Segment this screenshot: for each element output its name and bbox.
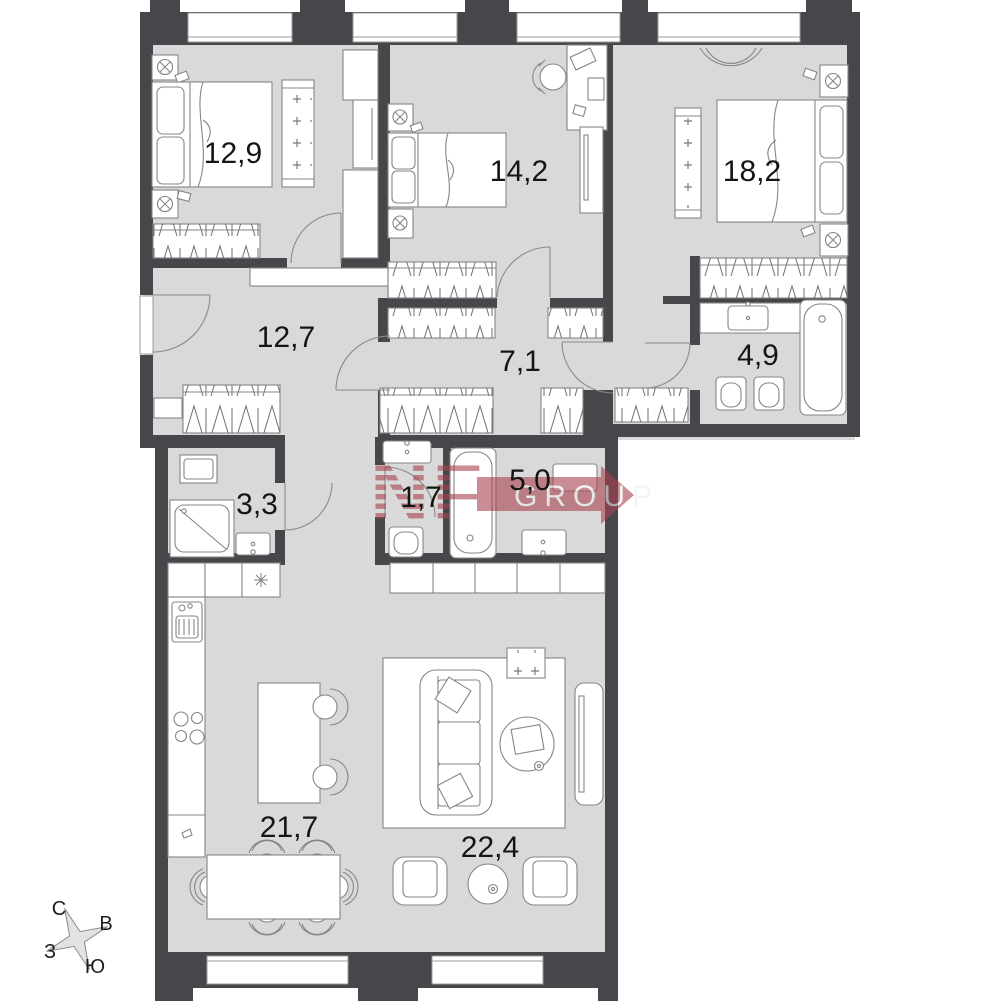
compass-rose: С В З Ю <box>44 898 113 978</box>
window-top-1 <box>188 13 292 42</box>
room-area-label-bedroom-2: 14,2 <box>490 155 548 188</box>
room-area-label-wc: 1,7 <box>400 481 442 514</box>
window-top-2 <box>353 13 457 42</box>
window-bottom-2 <box>432 956 543 984</box>
compass-label-west: З <box>44 941 56 963</box>
compass-label-east: В <box>99 913 112 935</box>
window-top-3 <box>517 13 620 42</box>
window-bottom-1 <box>207 956 348 984</box>
room-area-label-hallway: 12,7 <box>257 321 315 354</box>
room-area-label-corridor: 7,1 <box>499 345 541 378</box>
window-top-4 <box>658 13 800 42</box>
room-area-label-kitchen-dining: 21,7 <box>260 811 318 844</box>
floor-plan-page: NF GROUP 12,9 14,2 18,2 12,7 7,1 4,9 3,3… <box>0 0 1001 1001</box>
entrance-door-opening <box>140 296 153 354</box>
room-area-label-bathroom-second: 5,0 <box>509 464 551 497</box>
room-area-label-laundry: 3,3 <box>236 488 278 521</box>
floor-plan-svg: NF GROUP 12,9 14,2 18,2 12,7 7,1 4,9 3,3… <box>0 0 1001 1001</box>
room-area-label-living-room: 22,4 <box>461 831 519 864</box>
compass-label-south: Ю <box>85 956 105 978</box>
room-area-label-bedroom-3: 18,2 <box>723 155 781 188</box>
compass-label-north: С <box>52 898 66 920</box>
room-area-label-bedroom-1: 12,9 <box>204 137 262 170</box>
room-area-label-bathroom-main: 4,9 <box>737 339 779 372</box>
